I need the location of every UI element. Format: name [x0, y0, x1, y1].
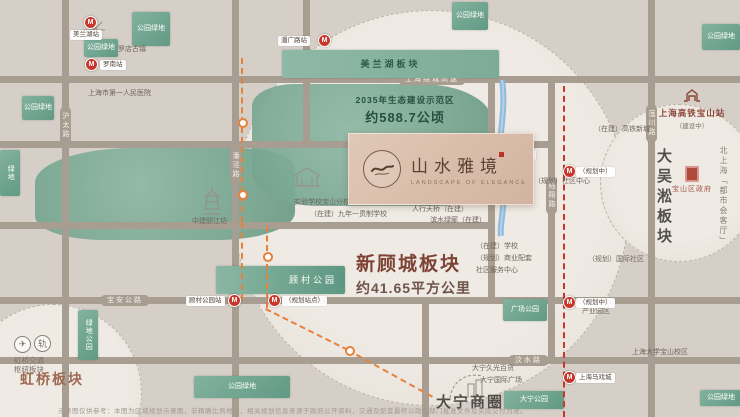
park-area: 公园绿地: [84, 39, 118, 57]
location-map: 2035年生态建设示范区 约588.7公顷: [0, 0, 740, 417]
metro-icon: M: [563, 296, 576, 309]
road-label: 沪太路: [60, 106, 71, 145]
hsr-status: （建设中）: [652, 120, 732, 130]
map-label: （规划）社区中心: [534, 178, 590, 187]
metro-icon: M: [563, 371, 576, 384]
map-label: 社区服务中心: [476, 267, 518, 276]
hongqiao-hub: ✈轨 虹桥交通 枢纽板块: [14, 334, 54, 374]
metro-station-label: 潘广路站: [278, 36, 310, 46]
map-label: （在建）学校: [476, 243, 518, 252]
temple-sketch: [290, 164, 324, 190]
project-card: 山水雅境 LANDSCAPE OF ELEGANCE: [348, 133, 534, 205]
planned-rail-line: [563, 86, 565, 417]
metro-icon: M: [85, 58, 98, 71]
eco-banner-line1: 2035年生态建设示范区: [320, 94, 490, 106]
eco-banner: 2035年生态建设示范区 约588.7公顷: [320, 94, 490, 126]
area-xingucheng-subtitle: 约41.65平方公里: [356, 278, 471, 298]
map-label: 实验学校宝山分校: [294, 199, 350, 208]
disclaimer: 示意图仅供参考：本图为区域规划示意图，非精确比例地图，相关规划信息来源于政府公开…: [58, 405, 527, 415]
metro-icon: M: [318, 34, 331, 47]
park-area: 公园绿地: [702, 24, 740, 50]
map-label: 大宁久光百货: [472, 365, 514, 374]
metro-icon: M: [228, 294, 241, 307]
metro-station-label: 罗南站: [100, 60, 126, 70]
map-label: （在建）高铁新城: [594, 126, 650, 135]
area-dawusong-title: 大吴淞板块: [653, 148, 674, 248]
park-area: 公园绿地: [132, 12, 170, 46]
metro-icon: M: [84, 16, 97, 29]
map-label: 上海市第一人民医院: [88, 90, 151, 99]
metro-icon: M: [268, 294, 281, 307]
map-label: （规划）商业配套: [476, 255, 532, 264]
road: [0, 222, 488, 229]
metro-station-label: （规划站点）: [282, 296, 327, 306]
metro-station-label: （规划中）: [576, 167, 615, 177]
dawusong-quote: 北上海「都市会客厅」: [718, 146, 729, 246]
map-label: 中建颐江坊: [192, 218, 227, 227]
map-label: （在建）九年一贯制学校: [310, 211, 387, 220]
road-label: 宝安公路: [100, 295, 150, 306]
park-area: 绿地公园: [78, 310, 98, 360]
map-label: 滨水绿廊（在建）: [430, 217, 486, 226]
park-area: 绿地: [0, 150, 20, 196]
road-label: 潘泾路: [230, 146, 241, 185]
hub-caption-1: 虹桥交通: [14, 356, 54, 365]
project-logo-icon: [363, 150, 401, 188]
area-xingucheng-title: 新顾城板块: [356, 249, 471, 276]
road-label: 汶水路: [508, 355, 549, 366]
park-area: 公园绿地: [452, 2, 488, 30]
area-xingucheng: 新顾城板块 约41.65平方公里: [356, 249, 471, 298]
metro-icon: M: [563, 165, 576, 178]
hsr-name: 上海高铁宝山站: [652, 107, 732, 119]
gov-seal-icon: [685, 166, 699, 182]
hsr-station: 上海高铁宝山站 （建设中）: [652, 88, 732, 130]
road: [422, 297, 429, 417]
rail-station-marker: [345, 346, 355, 356]
hub-caption-2: 枢纽板块: [14, 365, 54, 374]
map-label: 产业园区: [582, 308, 610, 317]
map-label: （规划）国际社区: [588, 256, 644, 265]
baoshan-gov: 宝山区政府: [672, 166, 712, 194]
metro-station-label: 美兰湖站: [70, 30, 102, 40]
metro-station-label: （规划中）: [576, 298, 615, 308]
park-area: 公园绿地: [700, 390, 740, 406]
park-area: 美兰湖板块: [282, 50, 499, 78]
plane-icon: ✈: [14, 336, 31, 353]
planned-rail-line: [241, 222, 243, 300]
planned-rail-line: [266, 226, 268, 308]
map-label: 人行天桥（在建）: [412, 206, 468, 215]
gov-name: 宝山区政府: [672, 184, 712, 194]
map-label: 大宁国际广场: [480, 377, 522, 386]
park-area: 公园绿地: [22, 96, 54, 120]
rail-station-marker: [263, 252, 273, 262]
pagoda-sketch: [198, 186, 226, 216]
park-area: 广场公园: [503, 299, 547, 321]
rail-station-marker: [238, 190, 248, 200]
hsr-building-icon: [683, 88, 701, 102]
road: [232, 0, 239, 417]
park-area: 顾村公园: [216, 266, 345, 294]
park-area: 公园绿地: [194, 376, 290, 398]
road: [62, 0, 69, 417]
road: [548, 76, 555, 360]
trademark-icon: [499, 152, 504, 157]
rail-icon: 轨: [34, 335, 51, 352]
project-tagline: LANDSCAPE OF ELEGANCE: [411, 180, 527, 186]
project-name: 山水雅境: [411, 157, 503, 176]
metro-station-label: 上海马戏城: [576, 373, 615, 383]
metro-station-label: 顾村公园站: [186, 296, 225, 306]
map-label: 上海大学宝山校区: [632, 349, 688, 358]
rail-station-marker: [238, 118, 248, 128]
eco-banner-line2: 约588.7公顷: [320, 107, 490, 126]
map-label: 罗店古镇: [118, 46, 146, 55]
